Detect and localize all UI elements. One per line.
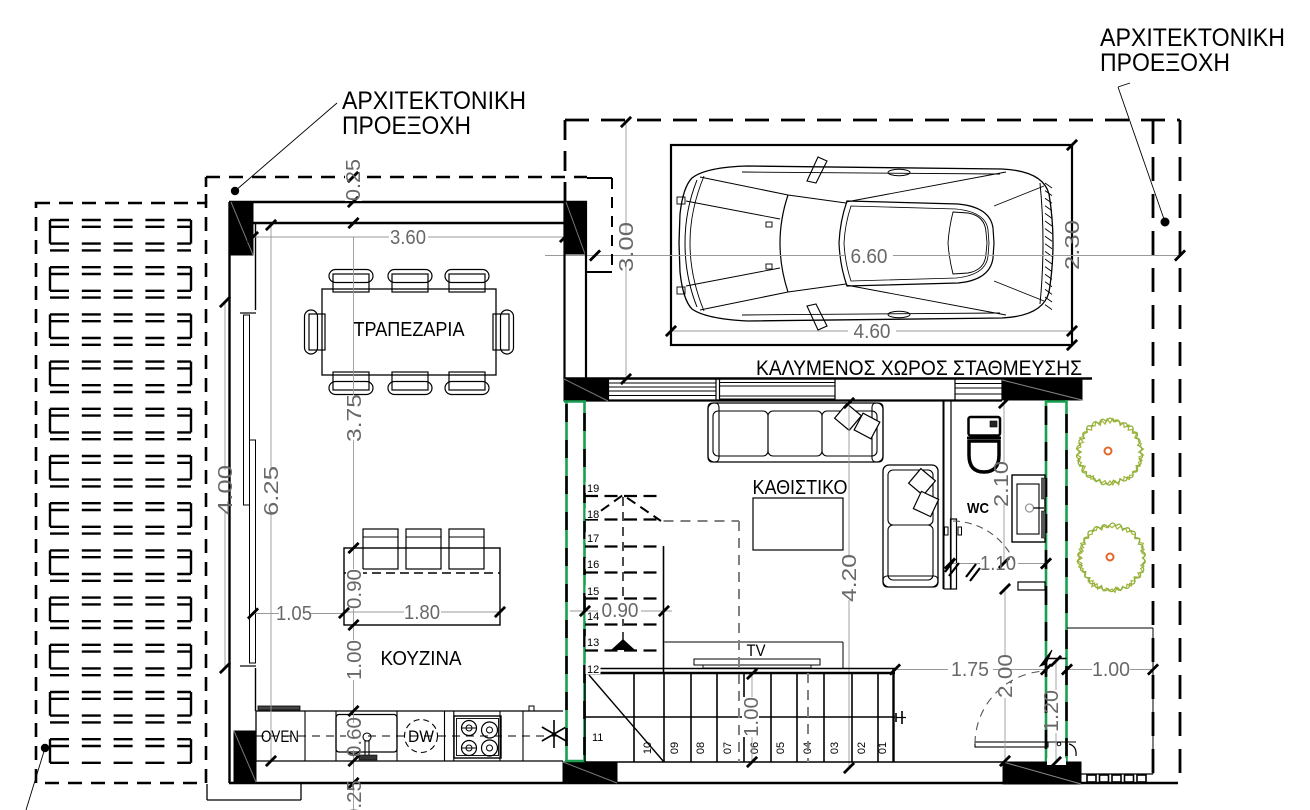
svg-text:ΚΑΘΙΣΤΙΚΟ: ΚΑΘΙΣΤΙΚΟ: [753, 477, 848, 499]
svg-text:6.25: 6.25: [261, 466, 283, 516]
svg-text:05: 05: [775, 742, 787, 754]
svg-text:09: 09: [669, 742, 681, 754]
svg-text:0.90: 0.90: [602, 600, 639, 622]
svg-text:ΚΑΛΥΜΕΝΟΣ ΧΩΡΟΣ ΣΤΑΘΜΕΥΣΗΣ: ΚΑΛΥΜΕΝΟΣ ΧΩΡΟΣ ΣΤΑΘΜΕΥΣΗΣ: [756, 357, 1082, 380]
svg-text:3.00: 3.00: [616, 222, 638, 272]
svg-text:DW: DW: [408, 727, 434, 746]
svg-text:1.10: 1.10: [980, 553, 1016, 575]
svg-text:2.10: 2.10: [991, 461, 1013, 507]
svg-text:4.00: 4.00: [215, 465, 237, 515]
svg-text:2.00: 2.00: [995, 654, 1017, 698]
svg-text:15: 15: [587, 586, 599, 598]
svg-text:01: 01: [877, 742, 889, 754]
svg-text:13: 13: [587, 637, 599, 649]
svg-text:1.00: 1.00: [1092, 659, 1130, 681]
svg-text:ΠΡΟΕΞΟΧΗ: ΠΡΟΕΞΟΧΗ: [1100, 49, 1230, 77]
svg-text:08: 08: [695, 742, 707, 754]
svg-text:1.00: 1.00: [741, 697, 763, 737]
svg-text:03: 03: [829, 742, 841, 754]
svg-text:16: 16: [587, 559, 599, 571]
svg-text:18: 18: [587, 509, 599, 521]
svg-text:4.60: 4.60: [854, 321, 891, 343]
svg-text:1.00: 1.00: [344, 640, 366, 680]
svg-text:1.80: 1.80: [404, 602, 440, 624]
svg-text:1.75: 1.75: [951, 659, 989, 681]
svg-text:6.60: 6.60: [851, 246, 888, 268]
svg-text:OVEN: OVEN: [261, 727, 299, 746]
svg-text:ΤΡΑΠΕΖΑΡΙΑ: ΤΡΑΠΕΖΑΡΙΑ: [354, 319, 466, 341]
svg-text:WC: WC: [967, 500, 989, 517]
svg-text:TV: TV: [747, 641, 767, 660]
svg-text:3.75: 3.75: [344, 394, 366, 442]
svg-text:06: 06: [749, 742, 761, 754]
svg-text:10: 10: [642, 742, 654, 754]
svg-text:ΑΡΧΙΤΕΚΤΟΝΙΚΗ: ΑΡΧΙΤΕΚΤΟΝΙΚΗ: [1100, 24, 1285, 52]
svg-text:0.60: 0.60: [344, 717, 366, 757]
svg-text:07: 07: [722, 742, 734, 754]
svg-text:17: 17: [587, 533, 599, 545]
svg-text:ΑΡΧΙΤΕΚΤΟΝΙΚΗ: ΑΡΧΙΤΕΚΤΟΝΙΚΗ: [342, 87, 526, 115]
svg-text:1.05: 1.05: [276, 603, 312, 625]
svg-text:2.30: 2.30: [1062, 220, 1084, 270]
svg-text:4.20: 4.20: [839, 554, 861, 602]
svg-text:ΚΟΥΖΙΝΑ: ΚΟΥΖΙΝΑ: [381, 648, 463, 670]
svg-text:02: 02: [856, 742, 868, 754]
svg-text:14: 14: [587, 611, 599, 623]
svg-text:19: 19: [587, 483, 599, 495]
svg-text:3.60: 3.60: [390, 227, 426, 249]
svg-text:ΠΡΟΕΞΟΧΗ: ΠΡΟΕΞΟΧΗ: [342, 112, 471, 140]
svg-text:11: 11: [592, 732, 603, 744]
svg-text:1.20: 1.20: [1041, 690, 1063, 732]
svg-text:12: 12: [587, 664, 599, 676]
svg-text:0.25: 0.25: [343, 159, 365, 201]
svg-text:0.90: 0.90: [344, 569, 366, 609]
svg-text:0.25: 0.25: [344, 780, 366, 810]
